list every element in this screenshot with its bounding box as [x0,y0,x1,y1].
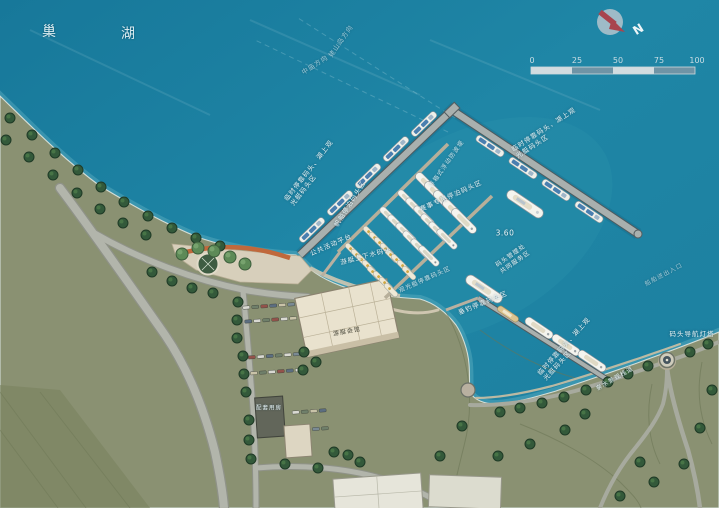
marina-master-plan-map: N 0 25 50 75 100 巢 湖 姥山岛方向 中庙方向 临时停靠码头、湖… [0,0,719,508]
support-building [255,396,286,438]
scale-tick-100: 100 [689,56,704,65]
label-lighthouse: 码头导航灯塔 [670,330,715,338]
scale-tick-50: 50 [613,56,623,65]
scale-tick-75: 75 [654,56,664,65]
scale-tick-25: 25 [572,56,582,65]
label-lake-name-1: 巢 [42,24,56,42]
scale-tick-0: 0 [529,56,534,65]
label-support-building: 配套用房 [256,406,282,413]
label-water-level: 3.60 [496,228,515,237]
lighthouse-icon [658,352,676,370]
label-lake-name-2: 湖 [121,26,135,44]
